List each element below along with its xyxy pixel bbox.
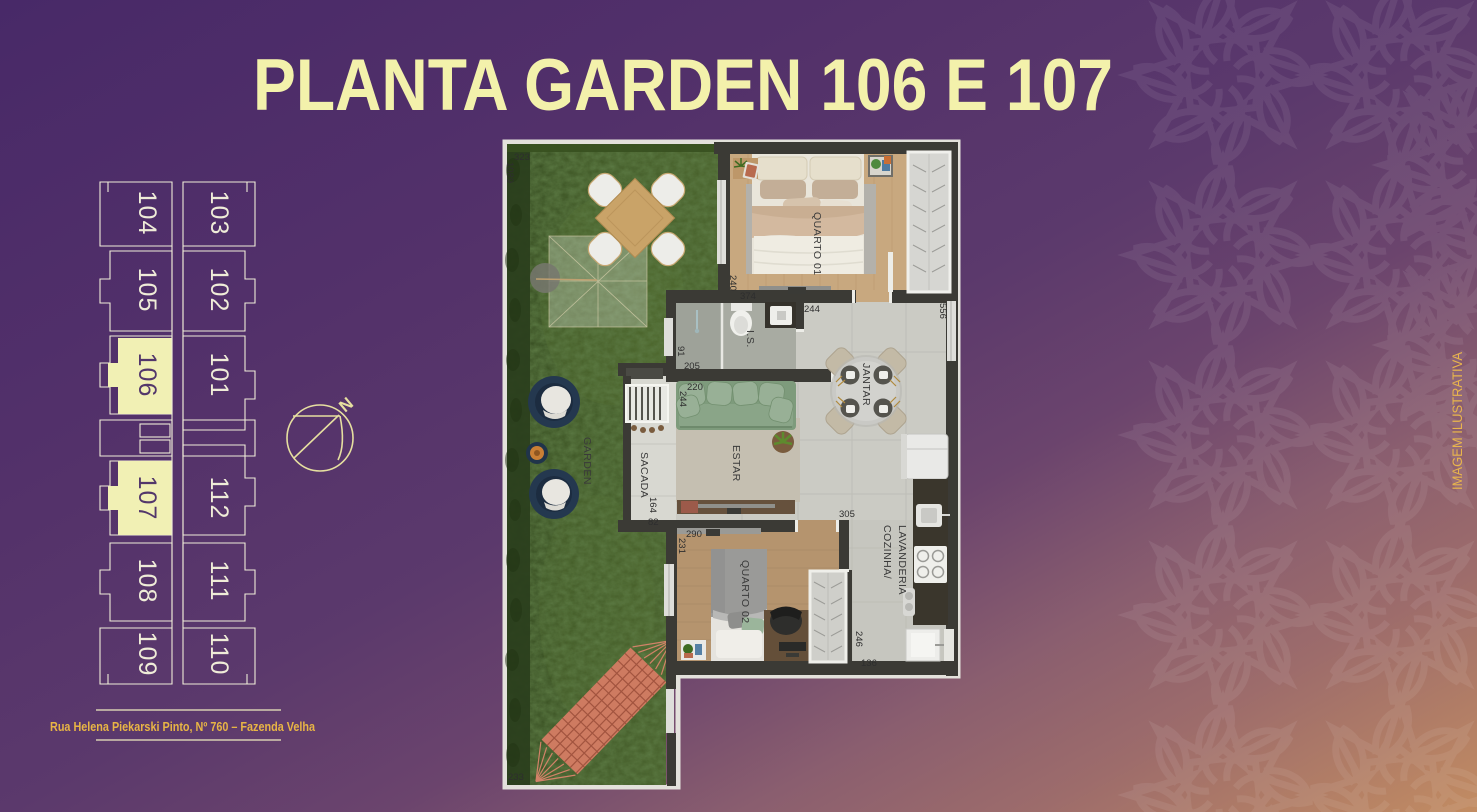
svg-text:290: 290 bbox=[686, 529, 702, 540]
svg-text:246: 246 bbox=[853, 631, 864, 647]
svg-text:136: 136 bbox=[861, 658, 877, 669]
svg-text:SACADA: SACADA bbox=[638, 452, 650, 498]
svg-text:244: 244 bbox=[677, 391, 688, 407]
svg-text:205: 205 bbox=[684, 361, 700, 372]
svg-text:374: 374 bbox=[740, 291, 756, 302]
svg-text:GARDEN: GARDEN bbox=[581, 437, 593, 485]
svg-text:233: 233 bbox=[508, 772, 524, 783]
svg-text:220: 220 bbox=[687, 382, 703, 393]
svg-text:COZINHA/: COZINHA/ bbox=[881, 525, 893, 579]
svg-text:1089: 1089 bbox=[504, 162, 515, 183]
svg-text:323: 323 bbox=[514, 152, 530, 163]
svg-text:82: 82 bbox=[648, 517, 659, 528]
svg-text:I.S.: I.S. bbox=[744, 330, 756, 348]
svg-text:QUARTO 01: QUARTO 01 bbox=[811, 212, 823, 276]
svg-text:305: 305 bbox=[839, 509, 855, 520]
svg-text:240: 240 bbox=[727, 275, 738, 291]
svg-text:ESTAR: ESTAR bbox=[730, 445, 742, 482]
svg-text:556: 556 bbox=[937, 303, 948, 319]
svg-text:231: 231 bbox=[676, 538, 687, 554]
svg-text:244: 244 bbox=[804, 304, 820, 315]
svg-text:QUARTO 02: QUARTO 02 bbox=[739, 560, 751, 624]
svg-text:91: 91 bbox=[675, 346, 686, 357]
svg-text:JANTAR: JANTAR bbox=[860, 363, 872, 406]
svg-text:164: 164 bbox=[647, 497, 658, 513]
svg-text:LAVANDERIA: LAVANDERIA bbox=[896, 525, 908, 595]
